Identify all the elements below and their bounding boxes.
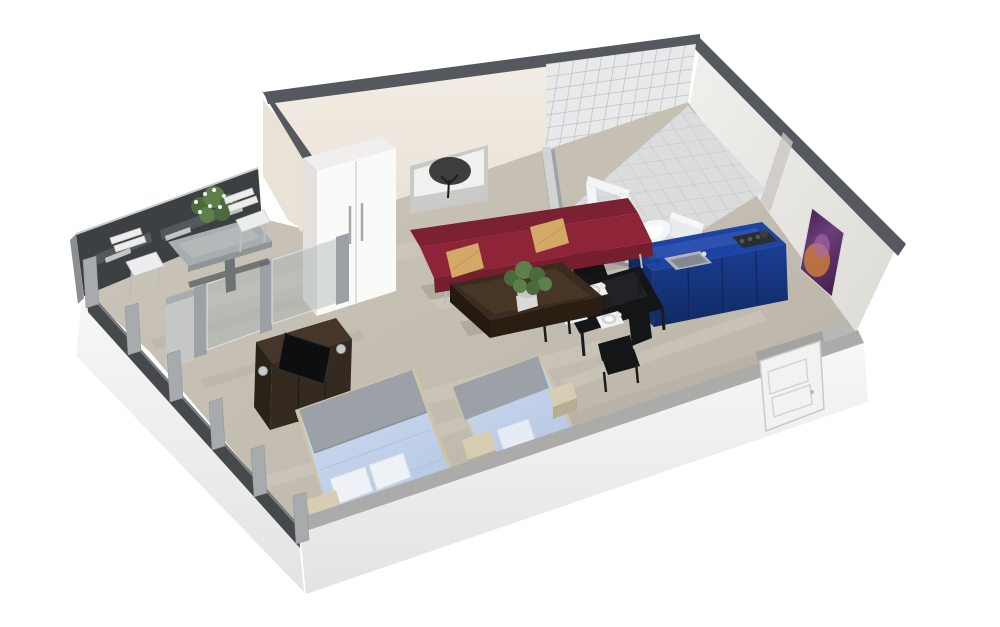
table-lamp-right xyxy=(337,345,346,354)
partition-post-3 xyxy=(336,233,349,305)
door-knob xyxy=(810,390,814,394)
tree-crown xyxy=(429,157,471,185)
partition-post-2 xyxy=(260,259,272,334)
floorplan-render xyxy=(0,0,1000,627)
partition-post-1 xyxy=(194,283,207,358)
table-lamp-left xyxy=(259,367,268,376)
art-violet-glow xyxy=(814,234,830,258)
pot xyxy=(760,230,768,238)
